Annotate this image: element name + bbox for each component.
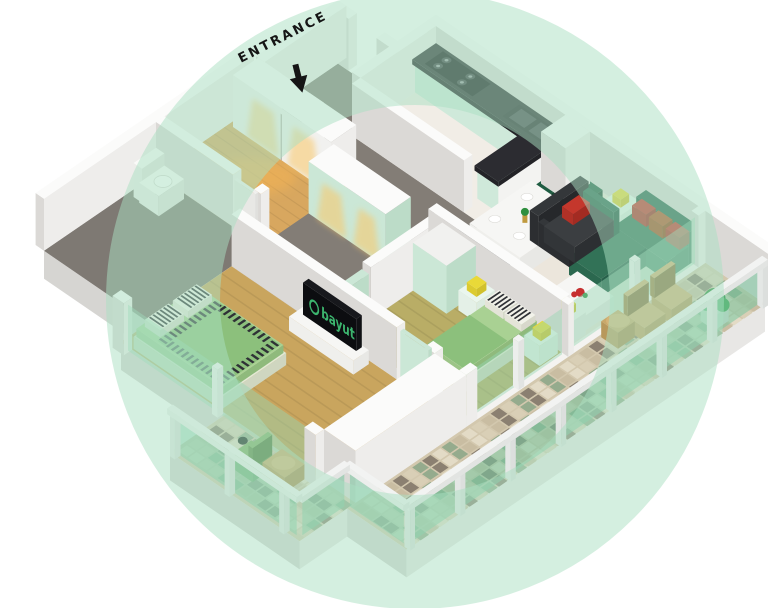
floorplan-3d-render: bayut xyxy=(0,0,768,608)
floorplan-canvas: bayut ENTRANCE xyxy=(0,0,768,608)
